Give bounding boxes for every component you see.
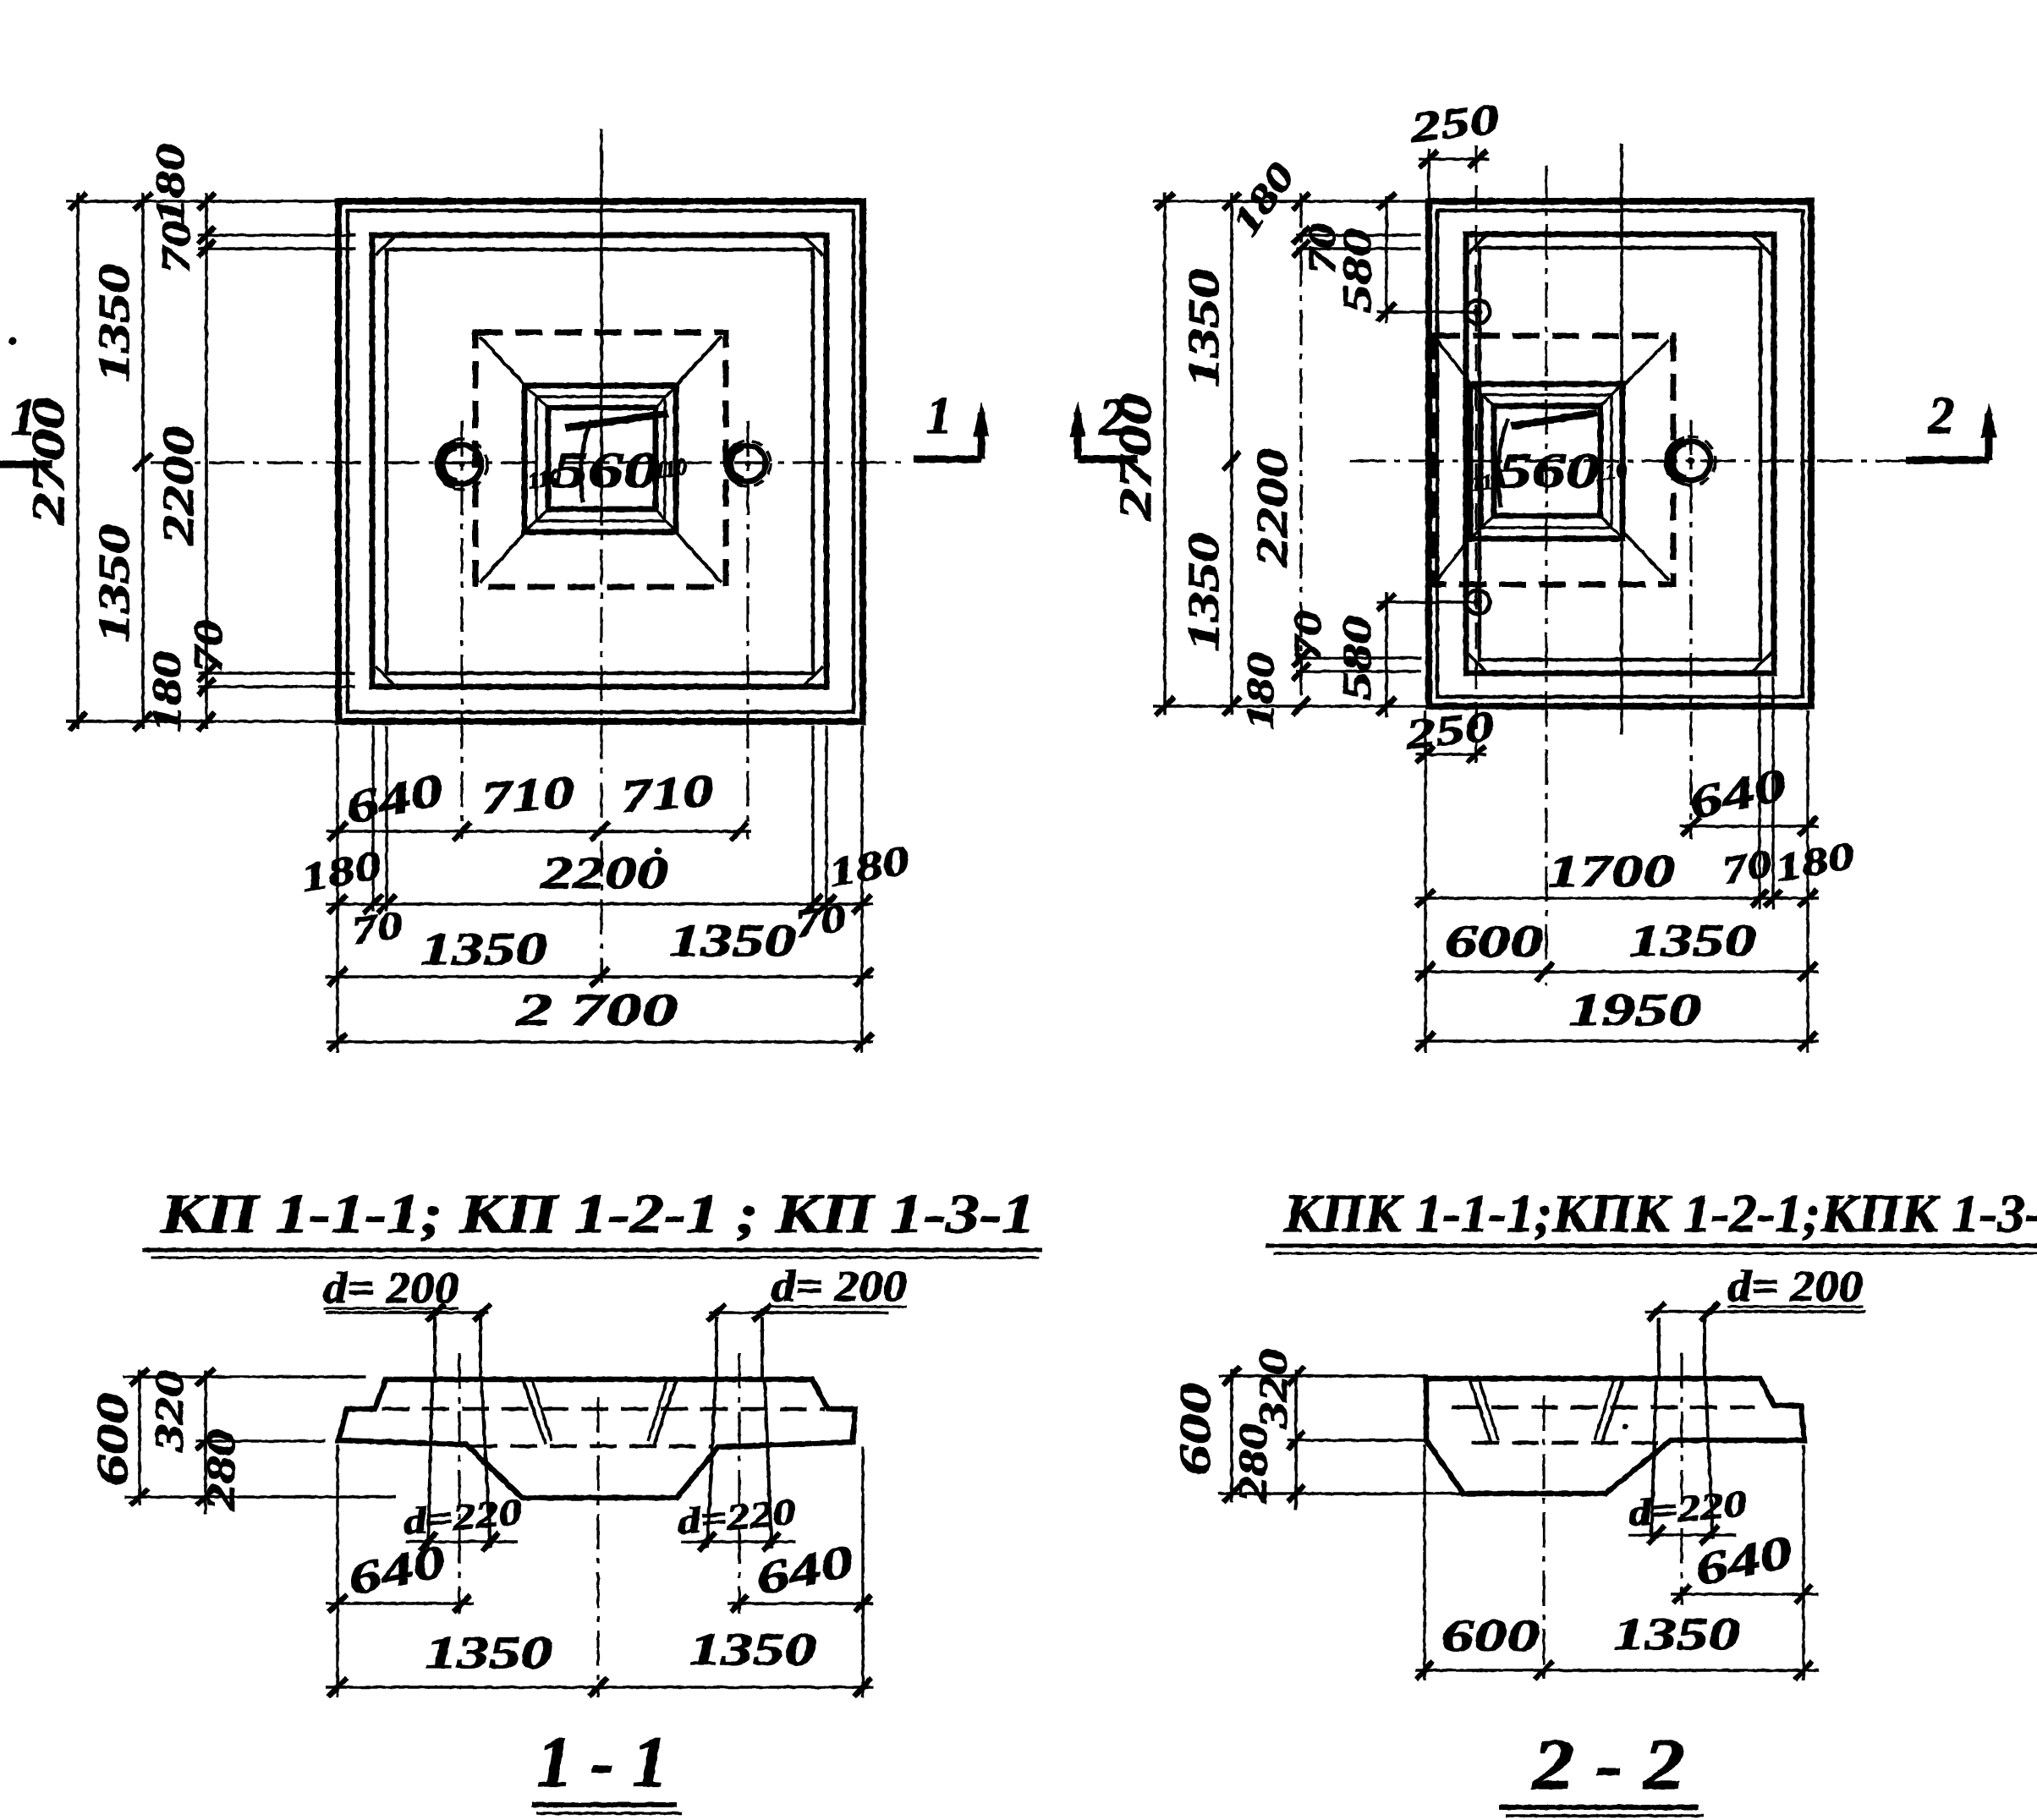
svg-text:1 - 1: 1 - 1 [537, 1721, 668, 1802]
svg-text:70: 70 [186, 620, 231, 672]
svg-text:2200: 2200 [155, 426, 203, 545]
svg-text:КП 1-1-1; КП 1-2-1 ; КП 1-3-1: КП 1-1-1; КП 1-2-1 ; КП 1-3-1 [160, 1183, 1035, 1245]
svg-text:600: 600 [1445, 916, 1543, 967]
svg-text:180: 180 [1772, 833, 1858, 890]
svg-text:2200: 2200 [1249, 448, 1297, 567]
svg-text:70: 70 [1300, 223, 1343, 274]
svg-text:1700: 1700 [1548, 846, 1675, 896]
svg-text:640: 640 [1684, 759, 1791, 829]
svg-text:560: 560 [1498, 443, 1600, 498]
svg-text:1350: 1350 [689, 1624, 816, 1675]
svg-text:1: 1 [926, 387, 953, 445]
svg-text:250: 250 [1403, 702, 1496, 759]
svg-text:710: 710 [480, 766, 576, 824]
svg-text:320: 320 [1251, 1349, 1296, 1429]
svg-text:2 - 2: 2 - 2 [1531, 1724, 1685, 1805]
svg-text:70: 70 [793, 896, 849, 946]
svg-text:110: 110 [526, 463, 563, 493]
svg-text:70: 70 [1719, 841, 1775, 892]
svg-text:d= 200: d= 200 [771, 1263, 907, 1311]
svg-text:d= 200: d= 200 [323, 1264, 458, 1313]
svg-text:2700: 2700 [23, 397, 74, 525]
svg-text:70: 70 [1286, 611, 1329, 661]
svg-text:2200: 2200 [541, 847, 668, 898]
svg-text:1350: 1350 [426, 1627, 552, 1678]
svg-text:180: 180 [1238, 652, 1282, 730]
svg-text:1350: 1350 [91, 524, 139, 643]
svg-text:710: 710 [619, 765, 716, 822]
svg-text:320: 320 [147, 1370, 192, 1452]
svg-text:2700: 2700 [1110, 393, 1161, 521]
svg-text:640: 640 [343, 1535, 450, 1605]
svg-text:1350: 1350 [420, 924, 547, 974]
svg-text:d= 200: d= 200 [1727, 1263, 1863, 1311]
svg-text:280: 280 [199, 1429, 244, 1511]
svg-text:70: 70 [154, 221, 199, 273]
svg-text:180: 180 [825, 837, 913, 896]
svg-text:250: 250 [1408, 95, 1502, 151]
svg-text:1350: 1350 [669, 915, 796, 966]
svg-text:2 700: 2 700 [515, 984, 678, 1035]
svg-text:1350: 1350 [1629, 915, 1756, 966]
svg-text:280: 280 [1231, 1423, 1276, 1504]
svg-text:1950: 1950 [1569, 984, 1701, 1035]
svg-text:640: 640 [341, 764, 447, 834]
svg-text:1350: 1350 [1180, 269, 1228, 387]
svg-text:1350: 1350 [1180, 533, 1228, 651]
svg-text:600: 600 [89, 1393, 137, 1486]
svg-text:2: 2 [1928, 387, 1955, 445]
svg-text:1350: 1350 [1613, 1609, 1740, 1659]
svg-text:d=220: d=220 [402, 1491, 524, 1543]
svg-text:70: 70 [349, 902, 406, 952]
svg-text:600: 600 [1441, 1610, 1540, 1661]
svg-text:1350: 1350 [91, 264, 139, 382]
svg-text:600: 600 [1172, 1383, 1220, 1476]
svg-text:560: 560 [552, 442, 659, 498]
svg-text:180: 180 [145, 651, 189, 732]
svg-text:КПК 1-1-1;КПК 1-2-1;КПК 1-3-1: КПК 1-1-1;КПК 1-2-1;КПК 1-3-1 [1283, 1183, 2037, 1243]
svg-text:d=220: d=220 [1627, 1483, 1749, 1534]
svg-text:180: 180 [148, 144, 193, 225]
